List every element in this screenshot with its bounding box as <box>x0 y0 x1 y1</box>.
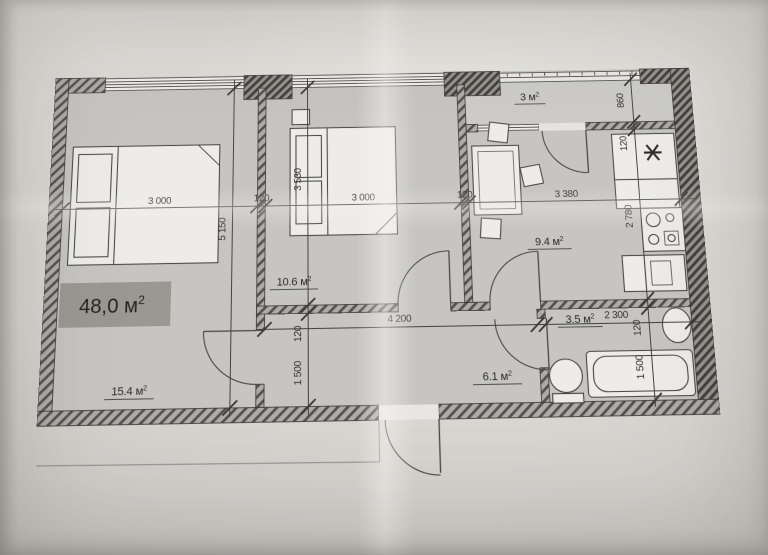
dim-hall-width: 1 500 <box>293 360 305 386</box>
exterior-landing-outline <box>36 420 379 468</box>
area-label-living: 15.4 м2 <box>111 385 147 399</box>
dining-table-icon <box>472 145 522 215</box>
entrance-door-leaf <box>439 419 441 473</box>
fridge-icon <box>622 255 687 292</box>
wall-hall-bath <box>540 368 550 403</box>
living-door-leaf <box>203 331 256 332</box>
floor-plan-svg: 3 000 120 3 000 120 3 380 5 150 3 530 12… <box>32 63 727 504</box>
dim-hall-length: 4 200 <box>387 313 412 325</box>
wall-segment <box>537 309 546 318</box>
dim-bedroom-height: 3 530 <box>293 167 304 191</box>
dim-wall-a: 120 <box>254 193 271 204</box>
wall-segment <box>244 75 292 100</box>
balcony-door-opening <box>539 123 586 131</box>
wall-segment <box>256 384 264 407</box>
dim-bath-height: 1 500 <box>634 354 647 380</box>
floor-plan: 3 000 120 3 000 120 3 380 5 150 3 530 12… <box>32 63 727 504</box>
dim-hall-wall: 120 <box>293 325 304 342</box>
dim-kitchen-width: 3 380 <box>554 189 579 200</box>
toilet-icon <box>549 359 584 403</box>
stove-icon <box>640 208 685 252</box>
dim-balcony-wall: 120 <box>618 135 630 151</box>
total-area-badge: 48,0 м2 <box>58 281 171 327</box>
area-label-bathroom: 3.5 м2 <box>565 313 595 326</box>
area-label-hallway: 6.1 м2 <box>482 370 512 383</box>
area-label-kitchen: 9.4 м2 <box>535 236 565 249</box>
bed-icon <box>67 145 219 266</box>
dim-bath-width: 2 300 <box>604 310 629 322</box>
dim-bedroom-width: 3 000 <box>351 192 375 203</box>
wall-segment <box>451 302 491 311</box>
wall-segment <box>466 124 478 132</box>
dim-living-width: 3 000 <box>148 196 172 207</box>
dim-balcony-depth: 860 <box>615 92 627 108</box>
wall-segment <box>444 71 501 96</box>
entrance-door-arc <box>385 419 441 476</box>
chair-icon <box>480 218 501 239</box>
dim-bath-wall: 120 <box>631 319 644 336</box>
chair-icon <box>488 122 509 143</box>
chair-icon <box>520 164 544 186</box>
counter-icon <box>615 179 680 209</box>
dim-kitchen-height: 2 780 <box>623 204 636 228</box>
nightstand-icon <box>292 110 309 125</box>
dim-living-height: 5 150 <box>217 217 229 241</box>
total-area-label: 48,0 м2 <box>79 294 146 319</box>
area-label-bedroom: 10.6 м2 <box>277 276 312 289</box>
dim-wall-b: 120 <box>457 190 474 201</box>
floor-plan-photo: 3 000 120 3 000 120 3 380 5 150 3 530 12… <box>0 0 768 555</box>
entrance-opening <box>379 404 439 420</box>
